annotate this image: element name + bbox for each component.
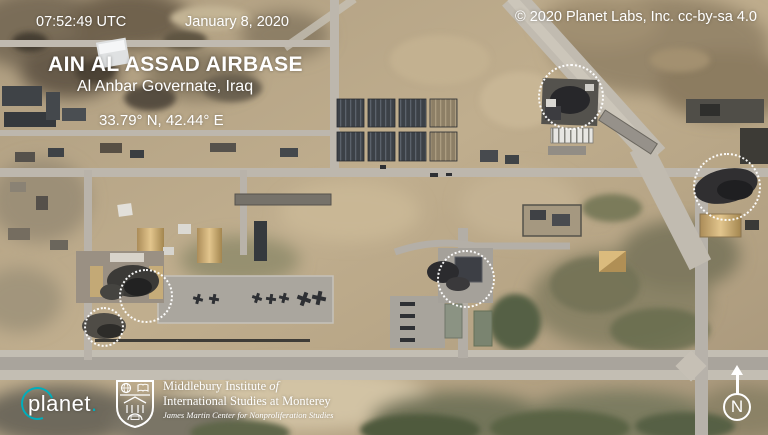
- impact-site-2: [693, 153, 761, 221]
- copyright-credit: © 2020 Planet Labs, Inc. cc-by-sa 4.0: [515, 9, 757, 25]
- middlebury-shield-icon: [115, 379, 155, 429]
- middlebury-text: Middlebury Institute of International St…: [163, 379, 333, 429]
- planet-wordmark: planet.: [28, 391, 98, 417]
- airbase-title: AIN AL ASSAD AIRBASE: [48, 53, 303, 77]
- impact-site-1: [538, 64, 604, 130]
- impact-site-3: [437, 250, 495, 308]
- north-indicator: N: [712, 365, 764, 427]
- planet-period: .: [91, 391, 98, 416]
- impact-site-5: [84, 307, 124, 347]
- region-subtitle: Al Anbar Governate, Iraq: [77, 78, 253, 96]
- satellite-view: 07:52:49 UTC January 8, 2020 © 2020 Plan…: [0, 0, 768, 435]
- middlebury-logo: Middlebury Institute of International St…: [115, 379, 333, 429]
- institute-center-name: James Martin Center for Nonproliferation…: [163, 410, 333, 420]
- institute-name-line1: Middlebury Institute of: [163, 379, 333, 394]
- north-label: N: [731, 397, 743, 417]
- coordinates-label: 33.79° N, 42.44° E: [99, 112, 224, 129]
- north-arrow-line: [736, 374, 739, 394]
- institute-name-line2: International Studies at Monterey: [163, 394, 333, 409]
- north-circle: N: [723, 393, 751, 421]
- planet-logo: planet.: [19, 385, 119, 427]
- timestamp-label: 07:52:49 UTC: [36, 14, 126, 30]
- impact-site-4: [119, 269, 173, 323]
- date-label: January 8, 2020: [185, 14, 289, 30]
